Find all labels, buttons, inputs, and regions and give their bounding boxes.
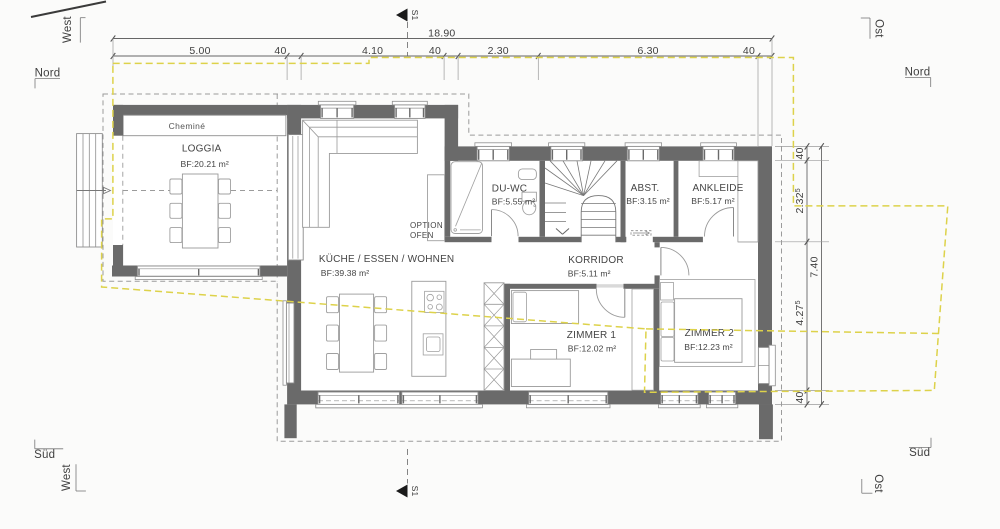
svg-text:40: 40 — [794, 147, 806, 159]
svg-text:40: 40 — [743, 45, 755, 57]
svg-text:BF:39.38 m²: BF:39.38 m² — [321, 268, 369, 278]
svg-text:KORRIDOR: KORRIDOR — [568, 255, 624, 266]
svg-text:2.30: 2.30 — [488, 45, 509, 57]
svg-text:S1: S1 — [410, 486, 420, 497]
svg-text:Nord: Nord — [905, 67, 931, 79]
svg-text:BF:5.11 m²: BF:5.11 m² — [568, 268, 611, 278]
svg-text:S1: S1 — [410, 10, 420, 21]
svg-text:West: West — [62, 16, 74, 43]
svg-text:DU-WC: DU-WC — [492, 184, 527, 195]
svg-text:7.40: 7.40 — [809, 256, 821, 277]
svg-text:6.30: 6.30 — [637, 45, 658, 57]
svg-text:Cheminé: Cheminé — [169, 121, 206, 131]
svg-text:ANKLEIDE: ANKLEIDE — [692, 183, 743, 194]
svg-text:BF:5.17 m²: BF:5.17 m² — [691, 196, 735, 206]
svg-text:Nord: Nord — [35, 68, 61, 80]
svg-text:4.10: 4.10 — [362, 45, 383, 57]
svg-text:ABST.: ABST. — [631, 183, 660, 194]
svg-text:BF:20.21 m²: BF:20.21 m² — [181, 159, 229, 169]
svg-text:OPTION: OPTION — [410, 221, 443, 230]
svg-text:BF:12.23 m²: BF:12.23 m² — [684, 342, 732, 352]
svg-text:Süd: Süd — [909, 447, 930, 459]
svg-text:5.00: 5.00 — [189, 45, 210, 57]
svg-text:West: West — [61, 464, 73, 491]
svg-text:BF:3.15 m²: BF:3.15 m² — [626, 196, 670, 206]
svg-text:Süd: Süd — [34, 449, 55, 461]
svg-text:LOGGIA: LOGGIA — [182, 144, 222, 155]
svg-text:40: 40 — [794, 391, 806, 403]
svg-text:BF:5.55 m²: BF:5.55 m² — [492, 197, 536, 207]
svg-text:ZIMMER 1: ZIMMER 1 — [567, 330, 617, 341]
svg-text:OFEN: OFEN — [410, 231, 434, 240]
svg-text:40: 40 — [429, 45, 441, 57]
svg-text:Ost: Ost — [872, 474, 884, 493]
svg-text:Ost: Ost — [873, 19, 885, 38]
svg-text:BF:12.02 m²: BF:12.02 m² — [568, 344, 616, 354]
svg-text:KÜCHE / ESSEN / WOHNEN: KÜCHE / ESSEN / WOHNEN — [319, 253, 455, 265]
svg-text:18.90: 18.90 — [428, 27, 455, 39]
svg-text:40: 40 — [274, 45, 286, 57]
